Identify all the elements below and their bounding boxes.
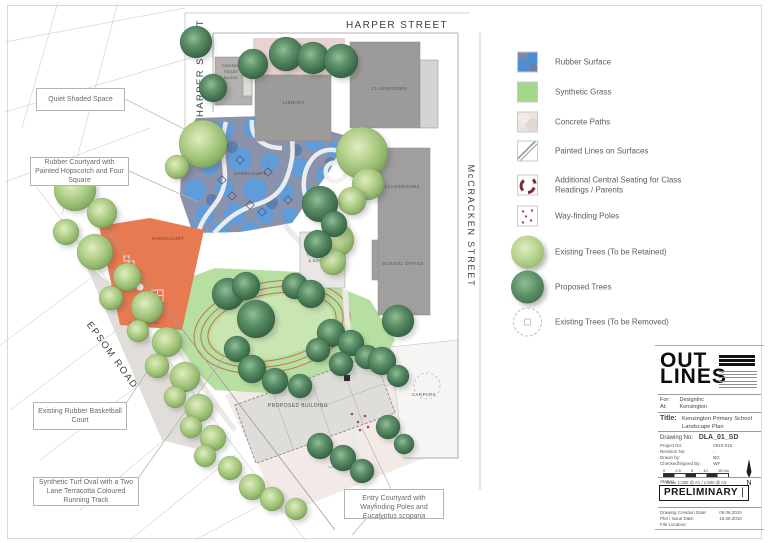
site-location: Kensington xyxy=(680,404,708,410)
outlines-logo: OUT LINES xyxy=(660,353,727,385)
tree-proposed xyxy=(238,355,266,383)
status-stamp: PRELIMINARY | xyxy=(659,485,749,501)
callout-entry-courtyard: Entry Courtyard with Wayfinding Poles an… xyxy=(344,489,444,519)
plan-label-disused-2: TOILET xyxy=(224,70,239,74)
tree-proposed xyxy=(306,338,330,362)
legend-row-wayfinding-poles: Way-finding Poles xyxy=(507,206,705,227)
drawn-by-row: Drawn by: BG xyxy=(660,455,720,460)
callout-synthetic-turf-oval: Synthetic Turf Oval with a Two Lane Terr… xyxy=(33,477,139,506)
tree-proposed xyxy=(350,459,374,483)
callout-text: Quiet Shaded Space xyxy=(48,95,113,104)
tree-existing xyxy=(218,456,242,480)
tree-proposed xyxy=(382,305,414,337)
callout-rubber-courtyard: Rubber Courtyard with Painted Hopscotch … xyxy=(30,157,129,186)
plan-label-hardcourt-orange: HARDCOURT xyxy=(152,236,184,241)
tree-proposed xyxy=(262,368,288,394)
tree-proposed xyxy=(199,74,227,102)
tree-proposed xyxy=(232,272,260,300)
plan-label-carpark: CARPARK xyxy=(412,392,436,397)
legend-row-synthetic-grass: Synthetic Grass xyxy=(507,82,705,103)
tree-existing xyxy=(145,354,169,378)
plan-label-mccracken-street: McCRACKEN STREET xyxy=(466,165,476,288)
tree-proposed xyxy=(387,365,409,387)
central-seating-swatch xyxy=(517,175,538,196)
plan-label-school-office: SCHOOL OFFICE xyxy=(382,261,424,266)
tree-existing xyxy=(131,291,163,323)
plan-label-disused-1: DISUSED xyxy=(222,64,240,68)
proposed-tree-swatch xyxy=(511,271,544,304)
legend-label: Concrete Paths xyxy=(555,117,705,127)
callout-basketball-court: Existing Rubber Basketball Court xyxy=(33,402,127,430)
scale-tick: 5 xyxy=(691,468,693,473)
painted-lines-swatch xyxy=(517,141,538,162)
status-label: Status: xyxy=(660,479,674,484)
tree-proposed xyxy=(307,433,333,459)
client-name: DesignInc xyxy=(680,397,704,403)
tree-existing xyxy=(127,320,149,342)
legend-row-rubber-surface: Rubber Surface xyxy=(507,52,705,73)
legend-row-painted-lines: Painted Lines on Surfaces xyxy=(507,141,705,162)
plan-label-classrooms-top: CLASSROOMS xyxy=(371,86,407,91)
legend-row-removed-trees: Existing Trees (To be Removed) xyxy=(507,308,705,337)
plan-label-hardcourt-rubber: HARDCOURT xyxy=(234,171,266,176)
file-location-row: File Location: xyxy=(660,522,718,527)
title-row: Title: xyxy=(660,415,677,422)
scale-tick: 15.0m xyxy=(718,468,729,473)
callout-text-italic: Eucalyptus scoparia xyxy=(363,513,426,520)
tree-existing xyxy=(152,327,182,357)
synthetic-grass-swatch xyxy=(517,82,538,103)
tree-existing xyxy=(338,187,366,215)
creation-date-row: Drawing Creation Date: 09.06.2010 xyxy=(660,510,742,515)
logo-line-2: LINES xyxy=(660,369,727,385)
tree-proposed xyxy=(238,49,268,79)
tree-proposed xyxy=(180,26,212,58)
tree-existing xyxy=(164,386,186,408)
tree-existing xyxy=(77,234,113,270)
scale-tick: 0 xyxy=(663,468,665,473)
legend-row-central-seating: Additional Central Seating for Class Rea… xyxy=(507,175,705,196)
tree-proposed xyxy=(288,374,312,398)
tree-existing xyxy=(180,416,202,438)
legend-label: Existing Trees (To be Removed) xyxy=(555,317,705,327)
tree-proposed xyxy=(237,300,275,338)
tree-proposed xyxy=(304,230,332,258)
drawing-number: DLA_01_SD xyxy=(699,434,739,441)
legend-label: Existing Trees (To be Retained) xyxy=(555,247,705,257)
tree-proposed xyxy=(324,44,358,78)
callout-text: Rubber Courtyard with Painted Hopscotch … xyxy=(34,158,125,185)
tree-existing xyxy=(285,498,307,520)
classrooms-top-building xyxy=(350,42,420,128)
tree-proposed xyxy=(297,280,325,308)
plan-label-harper-street-top: HARPER STREET xyxy=(346,20,448,31)
tree-existing xyxy=(53,219,79,245)
scale-tick: 10 xyxy=(703,468,707,473)
north-arrow: N xyxy=(739,458,759,486)
drawing-title: Kensington Primary School Landscape Plan xyxy=(682,416,752,431)
tree-existing xyxy=(113,263,141,291)
legend-label: Proposed Trees xyxy=(555,282,705,292)
tree-existing xyxy=(87,198,117,228)
for-row: For: DesignInc xyxy=(660,397,704,403)
legend-label: Additional Central Seating for Class Rea… xyxy=(555,175,705,195)
callout-text: Synthetic Turf Oval with a Two Lane Terr… xyxy=(37,478,135,505)
wayfinding-poles-swatch xyxy=(517,206,538,227)
drawing-sheet: HARPER STREETHARPER STREETMcCRACKEN STRE… xyxy=(0,0,768,543)
logo-address-lines xyxy=(719,355,759,390)
project-no-row: Project No: 0910-010 xyxy=(660,443,732,448)
plan-label-proposed-building: PROPOSED BUILDING xyxy=(268,403,328,409)
tree-existing xyxy=(260,487,284,511)
legend-row-proposed-trees: Proposed Trees xyxy=(507,271,705,304)
tree-existing xyxy=(194,445,216,467)
tree-proposed xyxy=(394,434,414,454)
removed-tree-swatch xyxy=(513,308,542,337)
rubber-surface-swatch xyxy=(517,52,538,73)
existing-tree-swatch xyxy=(511,236,544,269)
plan-label-disused-3: BLOCK xyxy=(224,76,238,80)
legend-label: Synthetic Grass xyxy=(555,87,705,97)
plan-label-classrooms-right: CLASSROOMS xyxy=(384,184,420,189)
seating-arcs-icon xyxy=(518,176,539,197)
at-row: At: Kensington xyxy=(660,404,707,410)
scale-tick: 2.5 xyxy=(675,468,681,473)
tree-existing xyxy=(165,155,189,179)
callout-text: Entry Courtyard with Wayfinding Poles an… xyxy=(360,495,427,511)
callout-quiet-shaded-space: Quiet Shaded Space xyxy=(36,88,125,111)
legend-row-existing-trees: Existing Trees (To be Retained) xyxy=(507,236,705,269)
library-building xyxy=(255,75,331,141)
poles-dots-icon xyxy=(518,207,539,228)
callout-text: Existing Rubber Basketball Court xyxy=(37,407,123,425)
title-block: OUT LINES For: DesignInc At: Kensington … xyxy=(655,345,764,530)
tree-existing xyxy=(99,286,123,310)
tree-proposed xyxy=(376,415,400,439)
legend-label: Rubber Surface xyxy=(555,57,705,67)
drawing-no-row: Drawing No: DLA_01_SD xyxy=(660,434,738,441)
checked-by-row: Checked/Signed By: WF xyxy=(660,461,720,466)
revision-row: Revision No: - xyxy=(660,449,715,454)
classrooms-office-building xyxy=(378,148,430,315)
issue-date-row: Plot / Issue Date: 16.06.2010 xyxy=(660,516,742,521)
legend-row-concrete-paths: Concrete Paths xyxy=(507,112,705,133)
concrete-paths-swatch xyxy=(517,112,538,133)
classrooms-annex xyxy=(420,60,438,128)
legend-label: Painted Lines on Surfaces xyxy=(555,146,705,156)
legend-label: Way-finding Poles xyxy=(555,211,705,221)
plan-label-library: LIBRARY xyxy=(283,100,305,105)
